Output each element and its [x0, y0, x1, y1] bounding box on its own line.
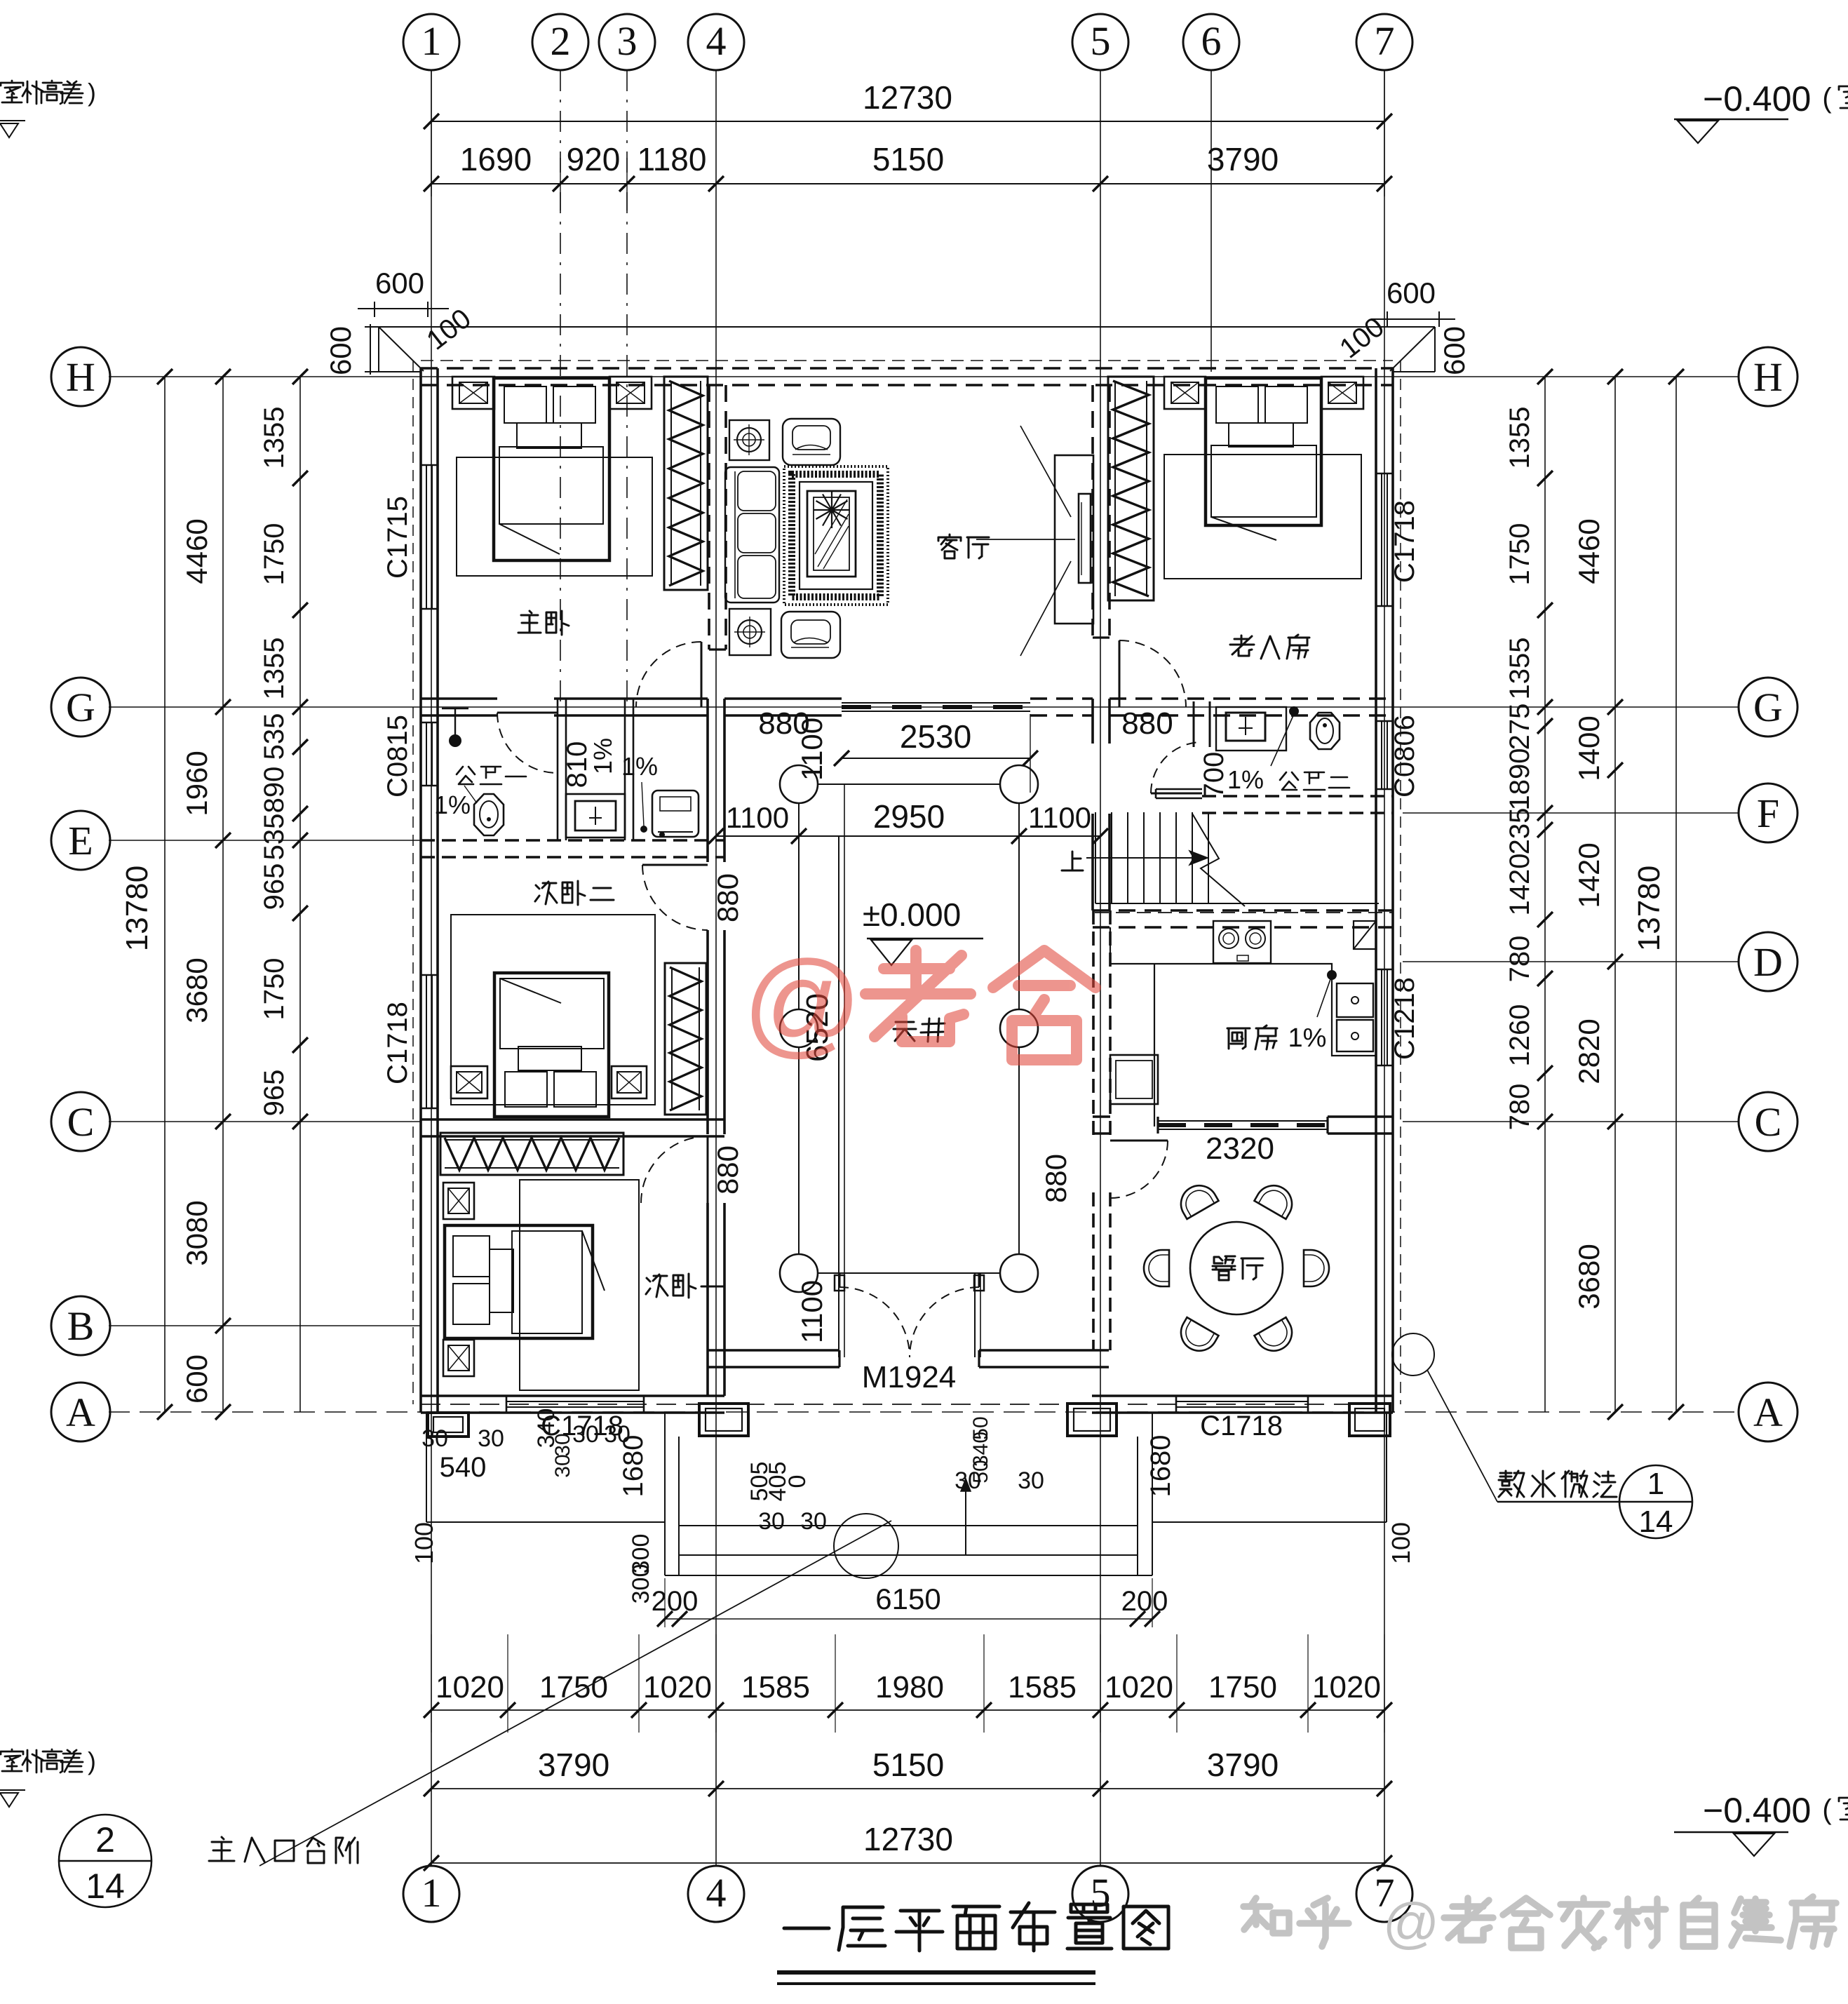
svg-text:1%: 1% — [434, 791, 471, 819]
svg-text:(: ( — [1822, 83, 1832, 114]
svg-text:5: 5 — [1091, 18, 1111, 64]
svg-text:3: 3 — [617, 18, 638, 64]
svg-text:1%: 1% — [1227, 765, 1264, 794]
svg-text:1690: 1690 — [460, 141, 532, 177]
svg-text:965: 965 — [259, 863, 290, 910]
svg-text:4460: 4460 — [180, 518, 213, 584]
svg-text:600: 600 — [375, 267, 424, 300]
svg-text:H: H — [1753, 354, 1783, 400]
svg-text:): ) — [88, 79, 96, 107]
svg-text:200: 200 — [652, 1586, 699, 1617]
svg-text:1750: 1750 — [1208, 1670, 1277, 1704]
svg-text:4460: 4460 — [1572, 518, 1605, 584]
svg-text:30: 30 — [551, 1433, 574, 1456]
svg-text:1890: 1890 — [1504, 748, 1535, 811]
svg-text:1355: 1355 — [259, 407, 290, 469]
svg-text:C: C — [67, 1099, 95, 1145]
svg-text:1960: 1960 — [180, 751, 213, 816]
svg-text:880: 880 — [1039, 1154, 1072, 1203]
svg-text:890: 890 — [259, 767, 290, 814]
svg-text:30: 30 — [572, 1421, 599, 1448]
svg-text:880: 880 — [1121, 706, 1173, 741]
svg-text:275: 275 — [1504, 704, 1535, 751]
svg-text:(: ( — [1822, 1794, 1832, 1825]
svg-text:±0.000: ±0.000 — [863, 896, 961, 933]
svg-text:1020: 1020 — [436, 1670, 504, 1704]
svg-text:920: 920 — [567, 141, 621, 177]
svg-text:300: 300 — [628, 1564, 654, 1604]
svg-text:14: 14 — [1639, 1505, 1673, 1539]
svg-text:M1924: M1924 — [862, 1360, 957, 1394]
svg-text:1180: 1180 — [638, 141, 707, 177]
svg-text:@: @ — [743, 936, 863, 1068]
svg-text:1: 1 — [421, 18, 442, 64]
svg-text:1020: 1020 — [1312, 1670, 1381, 1704]
svg-text:880: 880 — [758, 706, 809, 741]
svg-text:780: 780 — [1504, 936, 1535, 983]
svg-text:3790: 3790 — [1207, 1747, 1279, 1783]
svg-text:100: 100 — [410, 1522, 438, 1564]
svg-text:880: 880 — [711, 873, 744, 922]
svg-text:G: G — [1753, 685, 1783, 730]
svg-text:1355: 1355 — [1504, 407, 1535, 469]
svg-text:H: H — [66, 354, 95, 400]
svg-text:C0815: C0815 — [382, 715, 413, 798]
svg-text:1400: 1400 — [1572, 715, 1605, 781]
svg-text:C1218: C1218 — [1389, 977, 1420, 1060]
svg-text:1750: 1750 — [539, 1670, 608, 1704]
svg-text:−0.400: −0.400 — [1703, 1791, 1811, 1830]
svg-text:C1718: C1718 — [1389, 500, 1420, 583]
svg-text:3680: 3680 — [180, 957, 213, 1023]
svg-text:5150: 5150 — [872, 141, 944, 177]
svg-text:2820: 2820 — [1572, 1018, 1605, 1084]
svg-text:−0.400: −0.400 — [1703, 79, 1811, 119]
svg-text:780: 780 — [1504, 1084, 1535, 1131]
svg-text:12730: 12730 — [863, 79, 952, 116]
svg-text:1020: 1020 — [1105, 1670, 1173, 1704]
svg-text:A: A — [1753, 1390, 1783, 1435]
svg-text:965: 965 — [259, 1070, 290, 1117]
svg-text:600: 600 — [324, 326, 357, 375]
svg-text:1420: 1420 — [1572, 842, 1605, 908]
svg-text:1100: 1100 — [795, 1280, 828, 1343]
svg-text:1585: 1585 — [1008, 1670, 1077, 1704]
svg-text:1%: 1% — [1288, 1023, 1327, 1053]
svg-text:30: 30 — [551, 1454, 574, 1477]
svg-text:1: 1 — [421, 1870, 442, 1916]
svg-text:1750: 1750 — [259, 523, 290, 586]
svg-text:100: 100 — [1387, 1522, 1415, 1564]
svg-text:13780: 13780 — [120, 866, 154, 951]
svg-text:1100: 1100 — [726, 801, 789, 834]
svg-text:1750: 1750 — [1504, 523, 1535, 586]
svg-text:1680: 1680 — [1145, 1435, 1176, 1498]
svg-text:1420: 1420 — [1504, 854, 1535, 916]
svg-text:1585: 1585 — [741, 1670, 810, 1704]
svg-text:1260: 1260 — [1504, 1004, 1535, 1067]
svg-text:4: 4 — [706, 18, 727, 64]
svg-text:1750: 1750 — [259, 958, 290, 1021]
svg-text:6: 6 — [1201, 18, 1222, 64]
svg-text:6150: 6150 — [875, 1582, 940, 1615]
svg-text:30: 30 — [955, 1467, 981, 1494]
svg-text:2320: 2320 — [1206, 1131, 1274, 1166]
svg-text:2: 2 — [551, 18, 571, 64]
svg-text:3790: 3790 — [538, 1747, 609, 1783]
svg-text:30: 30 — [421, 1425, 448, 1452]
svg-text:C1718: C1718 — [1200, 1411, 1283, 1441]
svg-text:1%: 1% — [621, 752, 658, 781]
svg-text:600: 600 — [180, 1354, 213, 1404]
svg-text:B: B — [67, 1303, 95, 1349]
svg-text:12730: 12730 — [863, 1821, 953, 1857]
svg-text:C1718: C1718 — [382, 1002, 413, 1084]
svg-text:1020: 1020 — [643, 1670, 712, 1704]
svg-text:600: 600 — [1438, 326, 1471, 375]
svg-text:1355: 1355 — [1504, 638, 1535, 700]
svg-text:1355: 1355 — [259, 638, 290, 700]
svg-text:1%: 1% — [588, 738, 617, 774]
svg-text:535: 535 — [259, 814, 290, 861]
svg-text:1980: 1980 — [875, 1670, 944, 1704]
svg-text:A: A — [66, 1390, 95, 1435]
svg-text:700: 700 — [1199, 752, 1229, 799]
svg-text:3790: 3790 — [1207, 141, 1279, 177]
svg-text:600: 600 — [1387, 276, 1436, 309]
svg-text:3680: 3680 — [1572, 1244, 1605, 1309]
svg-text:30: 30 — [604, 1421, 630, 1448]
svg-text:30: 30 — [800, 1508, 827, 1535]
svg-text:2950: 2950 — [873, 798, 945, 835]
svg-text:30: 30 — [478, 1425, 504, 1452]
svg-text:2: 2 — [95, 1820, 115, 1860]
svg-text:2530: 2530 — [900, 718, 971, 755]
svg-text:535: 535 — [259, 713, 290, 760]
svg-text:F: F — [1757, 791, 1779, 836]
svg-text:E: E — [68, 818, 93, 863]
svg-text:235: 235 — [1504, 808, 1535, 855]
svg-text:13780: 13780 — [1632, 866, 1666, 951]
svg-text:G: G — [66, 685, 95, 730]
svg-text:5150: 5150 — [872, 1747, 944, 1783]
svg-text:@: @ — [1382, 1892, 1439, 1954]
svg-text:C1715: C1715 — [382, 496, 413, 579]
svg-text:4: 4 — [706, 1870, 727, 1916]
svg-text:D: D — [1753, 939, 1783, 985]
svg-text:30: 30 — [1018, 1467, 1044, 1494]
svg-text:14: 14 — [86, 1867, 125, 1906]
svg-text:1: 1 — [1647, 1467, 1664, 1501]
svg-text:C0806: C0806 — [1389, 715, 1420, 798]
svg-text:C: C — [1755, 1099, 1782, 1145]
svg-text:3080: 3080 — [180, 1200, 213, 1265]
svg-text:1100: 1100 — [1028, 801, 1091, 834]
svg-text:): ) — [88, 1747, 96, 1775]
svg-text:30: 30 — [758, 1508, 785, 1535]
svg-text:540: 540 — [440, 1452, 487, 1483]
svg-text:7: 7 — [1375, 18, 1395, 64]
svg-text:0: 0 — [784, 1475, 811, 1488]
svg-text:880: 880 — [711, 1145, 744, 1195]
